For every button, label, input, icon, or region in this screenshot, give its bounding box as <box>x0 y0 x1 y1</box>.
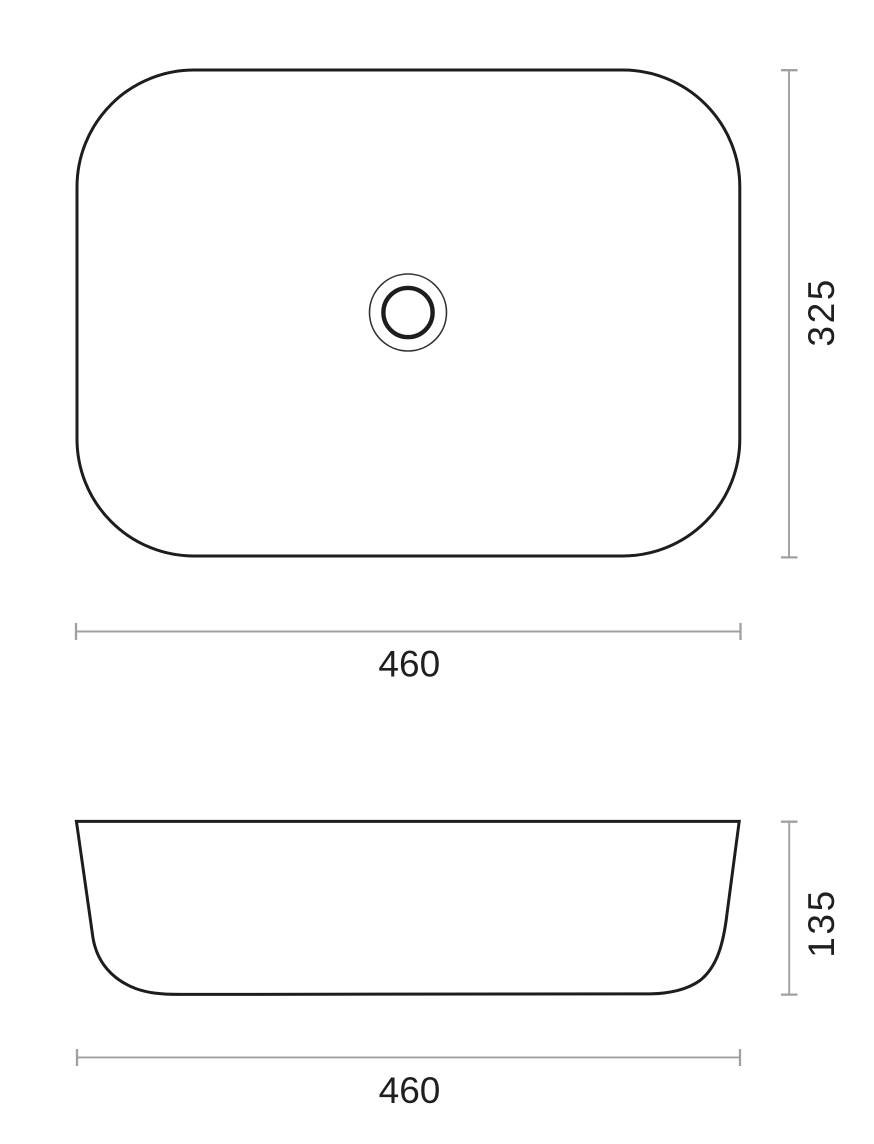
svg-text:325: 325 <box>801 277 842 347</box>
svg-text:460: 460 <box>379 1070 441 1111</box>
svg-text:460: 460 <box>378 644 440 685</box>
svg-text:135: 135 <box>801 888 842 958</box>
